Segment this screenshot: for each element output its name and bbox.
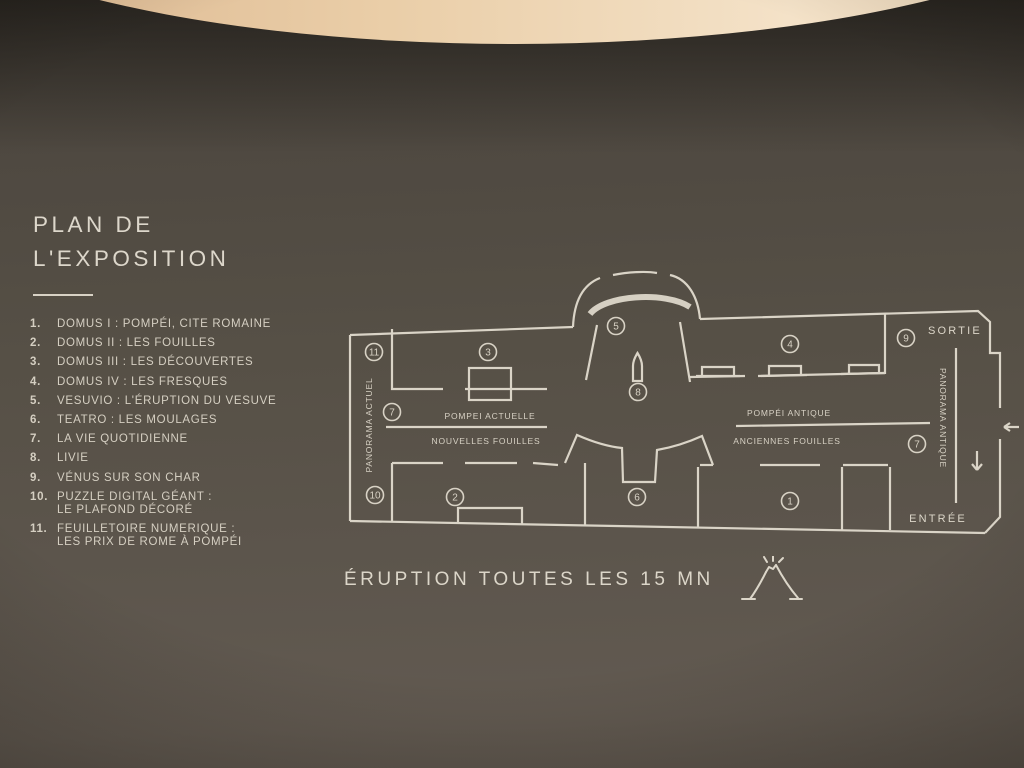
room-marker-10: 10 xyxy=(367,487,384,504)
svg-text:7: 7 xyxy=(914,440,920,451)
legend-item-6: 6.TEATRO : LES MOULAGES xyxy=(30,414,276,427)
legend-item-text: LA VIE QUOTIDIENNE xyxy=(57,433,188,446)
legend-item-number: 6. xyxy=(30,414,57,427)
legend-item-11: 11.FEUILLETOIRE NUMERIQUE :LES PRIX DE R… xyxy=(30,523,276,549)
room-marker-4: 4 xyxy=(782,336,799,353)
volcano-icon xyxy=(740,556,804,604)
legend-item-9: 9.VÉNUS SUR SON CHAR xyxy=(30,472,276,485)
svg-text:1: 1 xyxy=(787,497,793,508)
legend-item-number: 8. xyxy=(30,452,57,465)
dome-room-5 xyxy=(573,272,700,382)
page-title: PLAN DE L'EXPOSITION xyxy=(33,208,229,296)
legend-item-text: DOMUS II : LES FOUILLES xyxy=(57,337,216,350)
exhibition-plan-wall-photo: PLAN DE L'EXPOSITION 1.DOMUS I : POMPÉI,… xyxy=(0,0,1024,768)
label-pompei-antique: POMPÉI ANTIQUE xyxy=(747,408,831,418)
legend-item-number: 2. xyxy=(30,337,57,350)
room-marker-7-left: 7 xyxy=(384,404,401,421)
room-2-niche xyxy=(458,508,522,524)
label-entree: ENTRÉE xyxy=(909,512,967,525)
legend-item-number: 10. xyxy=(30,491,57,517)
room-marker-2: 2 xyxy=(447,489,464,506)
label-panorama-actuel: PANORAMA ACTUEL xyxy=(364,378,374,473)
room-marker-8: 8 xyxy=(630,384,647,401)
legend-item-text: DOMUS III : LES DÉCOUVERTES xyxy=(57,356,253,369)
right-section-walls xyxy=(690,313,956,530)
legend-item-3: 3.DOMUS III : LES DÉCOUVERTES xyxy=(30,356,276,369)
svg-text:5: 5 xyxy=(613,322,619,333)
label-sortie: SORTIE xyxy=(928,325,982,337)
svg-text:7: 7 xyxy=(389,408,395,419)
entrance-arrow-icon xyxy=(1004,423,1019,431)
svg-text:8: 8 xyxy=(635,388,641,399)
floor-plan: 11 3 5 4 9 7 8 7 10 2 6 1 PANORAMA ACTUE… xyxy=(340,255,1020,555)
title-line-1: PLAN DE xyxy=(33,208,229,242)
legend-item-number: 1. xyxy=(30,318,57,331)
legend-item-number: 5. xyxy=(30,395,57,408)
room-marker-3: 3 xyxy=(480,344,497,361)
legend-item-text: VESUVIO : L'ÉRUPTION DU VESUVE xyxy=(57,395,276,408)
room-marker-6: 6 xyxy=(629,489,646,506)
svg-text:9: 9 xyxy=(903,334,909,345)
svg-text:4: 4 xyxy=(787,340,793,351)
svg-text:6: 6 xyxy=(634,493,640,504)
legend-item-text: TEATRO : LES MOULAGES xyxy=(57,414,217,427)
legend-item-1: 1.DOMUS I : POMPÉI, CITE ROMAINE xyxy=(30,318,276,331)
theater-shape xyxy=(565,435,713,528)
svg-text:11: 11 xyxy=(369,348,380,359)
svg-text:2: 2 xyxy=(452,493,458,504)
legend-item-number: 7. xyxy=(30,433,57,446)
label-panorama-antique: PANORAMA ANTIQUE xyxy=(938,368,948,468)
legend-item-text: LIVIE xyxy=(57,452,89,465)
left-section-walls xyxy=(386,329,558,524)
room-3-exhibit-box xyxy=(469,368,511,400)
label-nouvelles-fouilles: NOUVELLES FOUILLES xyxy=(432,436,541,446)
legend-item-text: PUZZLE DIGITAL GÉANT :LE PLAFOND DÉCORÉ xyxy=(57,491,212,517)
legend-list: 1.DOMUS I : POMPÉI, CITE ROMAINE 2.DOMUS… xyxy=(30,318,276,556)
legend-item-2: 2.DOMUS II : LES FOUILLES xyxy=(30,337,276,350)
legend-item-number: 3. xyxy=(30,356,57,369)
room-marker-7-right: 7 xyxy=(909,436,926,453)
legend-item-text: FEUILLETOIRE NUMERIQUE :LES PRIX DE ROME… xyxy=(57,523,242,549)
legend-item-text: DOMUS I : POMPÉI, CITE ROMAINE xyxy=(57,318,271,331)
title-line-2: L'EXPOSITION xyxy=(33,242,229,276)
room-marker-1: 1 xyxy=(782,493,799,510)
panoramic-screen xyxy=(590,297,690,314)
legend-item-number: 4. xyxy=(30,376,57,389)
room-marker-9: 9 xyxy=(898,330,915,347)
legend-item-4: 4.DOMUS IV : LES FRESQUES xyxy=(30,376,276,389)
label-pompei-actuelle: POMPEI ACTUELLE xyxy=(445,411,536,421)
svg-text:10: 10 xyxy=(369,491,381,502)
title-underline xyxy=(33,294,93,296)
room-marker-5: 5 xyxy=(608,318,625,335)
statue-icon xyxy=(633,353,642,381)
legend-item-10: 10.PUZZLE DIGITAL GÉANT :LE PLAFOND DÉCO… xyxy=(30,491,276,517)
legend-item-8: 8.LIVIE xyxy=(30,452,276,465)
eruption-note: ÉRUPTION TOUTES LES 15 MN xyxy=(344,556,804,604)
pedestal-icons xyxy=(696,365,885,376)
legend-item-number: 11. xyxy=(30,523,57,549)
legend-item-5: 5.VESUVIO : L'ÉRUPTION DU VESUVE xyxy=(30,395,276,408)
legend-item-text: DOMUS IV : LES FRESQUES xyxy=(57,376,228,389)
label-anciennes-fouilles: ANCIENNES FOUILLES xyxy=(733,436,840,446)
legend-item-text: VÉNUS SUR SON CHAR xyxy=(57,472,201,485)
svg-text:3: 3 xyxy=(485,348,491,359)
direction-down-arrow-icon xyxy=(972,451,982,470)
room-marker-11: 11 xyxy=(366,344,383,361)
legend-item-7: 7.LA VIE QUOTIDIENNE xyxy=(30,433,276,446)
legend-item-number: 9. xyxy=(30,472,57,485)
eruption-text: ÉRUPTION TOUTES LES 15 MN xyxy=(344,569,714,591)
